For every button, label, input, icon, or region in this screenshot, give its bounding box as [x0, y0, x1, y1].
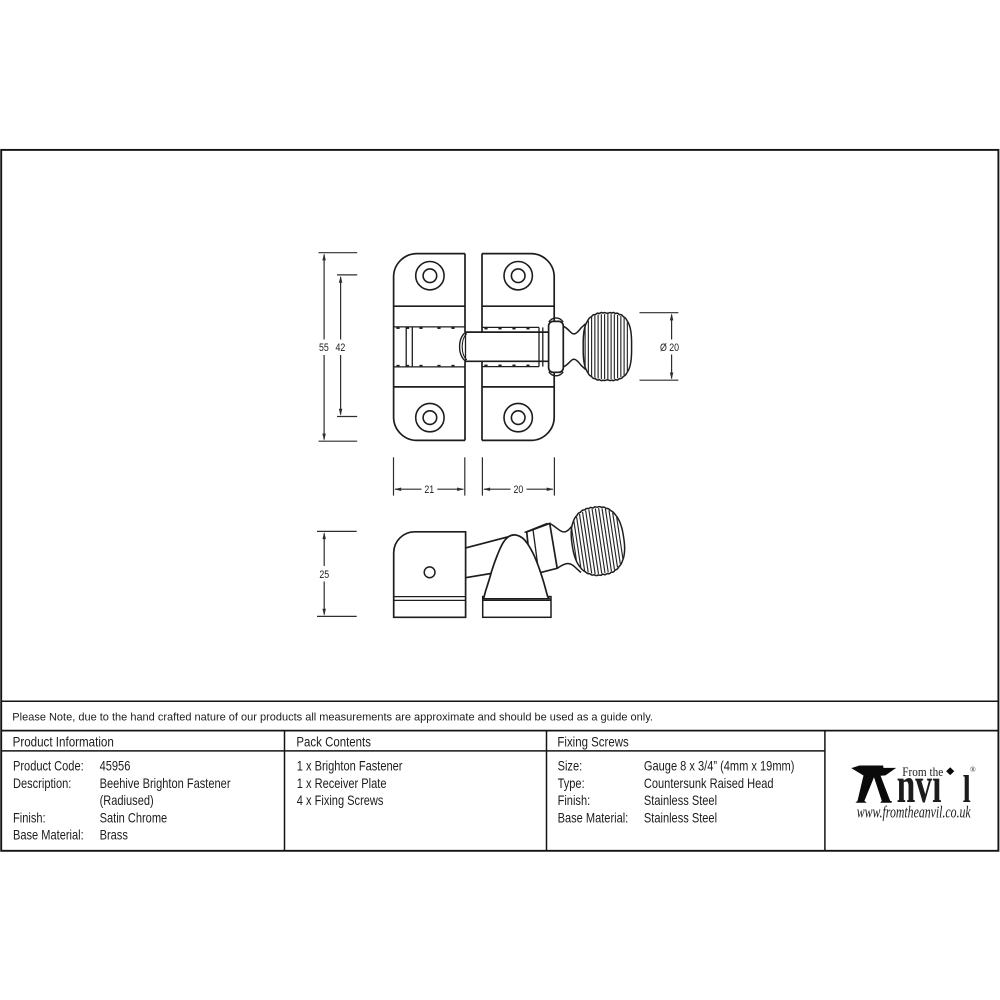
svg-text:Brass: Brass — [100, 827, 128, 842]
svg-text:21: 21 — [424, 484, 434, 496]
svg-text:4 x Fixing Screws: 4 x Fixing Screws — [297, 793, 384, 808]
svg-text:1 x Brighton Fastener: 1 x Brighton Fastener — [297, 759, 403, 774]
svg-text:Base Material:: Base Material: — [13, 827, 84, 842]
svg-text:1 x Receiver Plate: 1 x Receiver Plate — [297, 776, 387, 791]
svg-text:Satin Chrome: Satin Chrome — [100, 810, 168, 825]
svg-text:®: ® — [970, 765, 976, 774]
svg-text:Ø 20: Ø 20 — [660, 342, 679, 354]
svg-text:25: 25 — [319, 569, 329, 581]
svg-text:Fixing Screws: Fixing Screws — [557, 735, 628, 750]
svg-text:(Radiused): (Radiused) — [100, 793, 154, 808]
svg-text:55: 55 — [319, 342, 329, 354]
svg-text:Finish:: Finish: — [558, 793, 591, 808]
svg-text:www.fromtheanvil.co.uk: www.fromtheanvil.co.uk — [857, 804, 971, 823]
svg-text:Stainless Steel: Stainless Steel — [644, 793, 717, 808]
svg-text:20: 20 — [514, 484, 524, 496]
svg-text:Stainless Steel: Stainless Steel — [644, 810, 717, 825]
svg-text:Type:: Type: — [558, 776, 585, 791]
svg-text:Beehive Brighton Fastener: Beehive Brighton Fastener — [100, 776, 231, 791]
svg-text:Gauge 8 x 3/4” (4mm x 19mm): Gauge 8 x 3/4” (4mm x 19mm) — [644, 759, 795, 774]
svg-text:Description:: Description: — [13, 776, 71, 791]
svg-text:42: 42 — [336, 342, 346, 354]
svg-text:Finish:: Finish: — [13, 810, 46, 825]
svg-text:Pack Contents: Pack Contents — [296, 735, 371, 750]
svg-text:Countersunk Raised Head: Countersunk Raised Head — [644, 776, 774, 791]
svg-text:Base Material:: Base Material: — [558, 810, 629, 825]
svg-text:45956: 45956 — [100, 759, 131, 774]
svg-text:Product Code:: Product Code: — [13, 759, 84, 774]
svg-text:Size:: Size: — [558, 759, 583, 774]
svg-text:From the: From the — [902, 764, 943, 779]
svg-text:Please Note, due to the hand c: Please Note, due to the hand crafted nat… — [12, 711, 653, 723]
svg-text:Product Information: Product Information — [13, 735, 114, 750]
